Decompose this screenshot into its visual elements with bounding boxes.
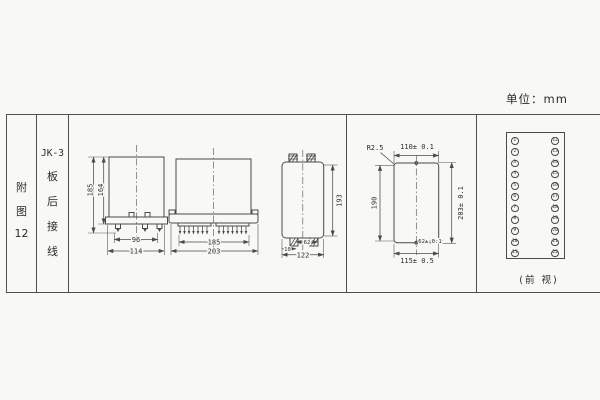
terminal-pin: 14 bbox=[551, 160, 559, 168]
figure-char-2: 图 bbox=[16, 203, 27, 219]
dim-label-width-outer-front: 203 bbox=[208, 248, 221, 256]
dim-label-cutout-height-right: 203± 0.1 bbox=[457, 186, 465, 220]
terminal-pin: 19 bbox=[551, 216, 559, 224]
terminal-pin: 2 bbox=[511, 148, 519, 156]
terminal-view-cell: 1 2 3 4 5 6 7 8 9 10 11 12 13 14 15 bbox=[477, 115, 600, 292]
profile-view-drawing: 193 62 10 122 bbox=[282, 150, 344, 259]
terminal-pin: 22 bbox=[551, 250, 559, 258]
dim-label-profile-width: 122 bbox=[297, 251, 310, 259]
terminal-pin: 7 bbox=[511, 205, 519, 213]
dim-label-stud-span: 62 bbox=[304, 240, 311, 246]
terminal-caption: (前 视) bbox=[477, 272, 600, 286]
unit-label: 单位：mm bbox=[506, 91, 568, 107]
title-char-3: 接 bbox=[47, 218, 58, 234]
dim-label-height-inner: 164 bbox=[97, 184, 105, 197]
figure-char-1: 附 bbox=[16, 179, 27, 195]
panel-cutout-cell: R2.5 110± 0.1 190 203± 0.1 62± 0.1 115± … bbox=[347, 115, 477, 292]
terminal-pin: 13 bbox=[551, 148, 559, 156]
terminal-pin: 12 bbox=[551, 137, 559, 145]
terminal-pin: 9 bbox=[511, 227, 519, 235]
title-char-2: 后 bbox=[47, 193, 58, 209]
series-name: JK-3 bbox=[41, 148, 64, 159]
dimension-drawings-cell: 185 164 96 114 bbox=[69, 115, 347, 292]
dim-label-width-inner-side: 96 bbox=[132, 236, 140, 244]
figure-number-cell: 附 图 12 bbox=[7, 115, 37, 292]
title-char-4: 线 bbox=[47, 243, 58, 259]
terminal-pin: 15 bbox=[551, 171, 559, 179]
terminal-pin: 1 bbox=[511, 137, 519, 145]
terminal-pin: 11 bbox=[511, 250, 519, 258]
figure-title-cell: JK-3 板 后 接 线 bbox=[37, 115, 69, 292]
terminal-pin: 16 bbox=[551, 182, 559, 190]
terminal-pin: 18 bbox=[551, 205, 559, 213]
title-char-1: 板 bbox=[47, 168, 58, 184]
terminal-pin: 8 bbox=[511, 216, 519, 224]
dim-label-edge-offset: 10 bbox=[284, 247, 291, 253]
figure-number: 12 bbox=[15, 227, 29, 240]
terminal-pin: 10 bbox=[511, 239, 519, 247]
terminal-box: 1 2 3 4 5 6 7 8 9 10 11 12 13 14 15 bbox=[506, 132, 565, 259]
dim-label-profile-height: 193 bbox=[336, 194, 344, 207]
dim-label-cutout-height-left: 190 bbox=[371, 197, 379, 210]
terminal-pin-column-left: 1 2 3 4 5 6 7 8 9 10 11 bbox=[511, 137, 519, 257]
dim-label-cutout-width-top: 110± 0.1 bbox=[400, 143, 434, 151]
terminal-pin-column-right: 12 13 14 15 16 17 18 19 20 21 22 bbox=[551, 137, 559, 257]
terminal-pin: 5 bbox=[511, 182, 519, 190]
front-view-drawing: 185 203 bbox=[169, 148, 258, 256]
terminal-pin: 4 bbox=[511, 171, 519, 179]
side-view-drawing: 185 164 96 114 bbox=[87, 145, 168, 256]
dim-label-width-outer-side: 114 bbox=[130, 248, 143, 256]
terminal-pin: 21 bbox=[551, 239, 559, 247]
top-studs bbox=[288, 154, 316, 162]
figure-table: 附 图 12 JK-3 板 后 接 线 bbox=[6, 114, 600, 293]
dim-label-height-outer: 185 bbox=[87, 184, 95, 197]
terminal-pin: 17 bbox=[551, 193, 559, 201]
figure-page: 单位：mm 附 图 12 JK-3 板 后 接 线 bbox=[0, 0, 600, 400]
relay-views-drawing: 185 164 96 114 bbox=[69, 115, 347, 294]
dim-label-hole-span: 62± 0.1 bbox=[418, 239, 442, 245]
terminal-pin: 3 bbox=[511, 160, 519, 168]
terminal-pin: 20 bbox=[551, 227, 559, 235]
panel-cutout-drawing: R2.5 110± 0.1 190 203± 0.1 62± 0.1 115± … bbox=[347, 115, 477, 294]
dim-label-corner-radius: R2.5 bbox=[367, 144, 384, 152]
terminal-pin: 6 bbox=[511, 193, 519, 201]
dim-label-cutout-width-bottom: 115± 0.5 bbox=[400, 257, 434, 265]
dim-label-width-inner-front: 185 bbox=[208, 239, 221, 247]
